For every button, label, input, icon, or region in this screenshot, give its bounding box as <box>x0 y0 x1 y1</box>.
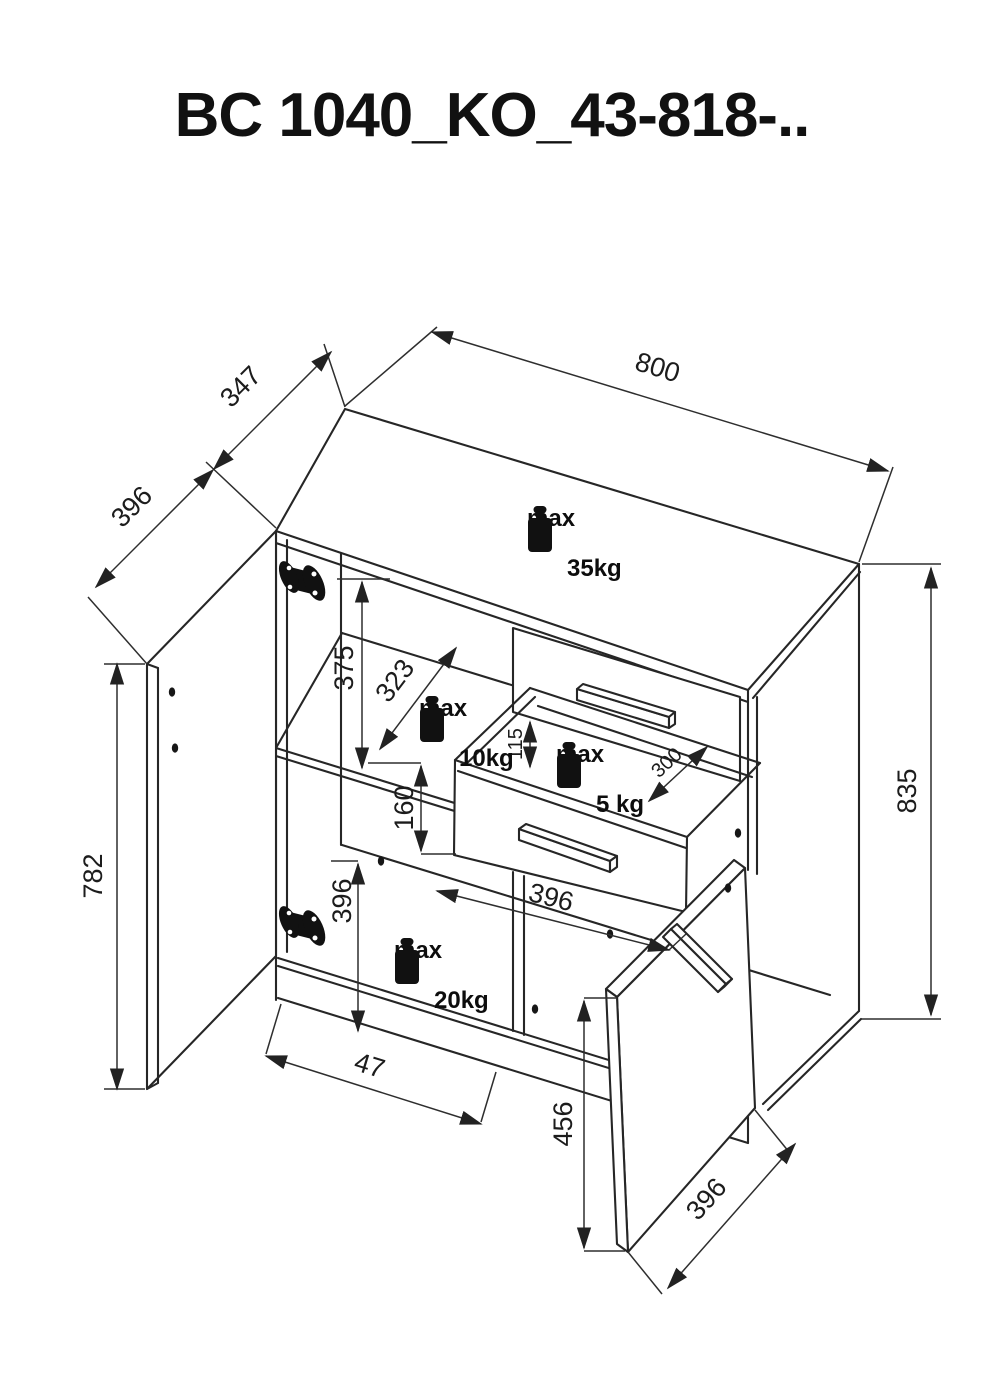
max-weight-bottom: max 20kg <box>394 938 489 1013</box>
dimension-782-left-door-height: 782 <box>78 664 145 1089</box>
right-door <box>606 860 755 1252</box>
svg-text:375: 375 <box>329 645 359 690</box>
weight-icon <box>419 696 445 742</box>
svg-text:800: 800 <box>632 346 684 388</box>
dimension-835-cabinet-height: 835 <box>861 564 941 1019</box>
svg-text:160: 160 <box>389 785 419 830</box>
svg-text:47: 47 <box>351 1047 389 1084</box>
hinge-top-icon <box>275 558 330 604</box>
svg-text:347: 347 <box>214 360 267 413</box>
max-value: 20kg <box>434 987 489 1014</box>
svg-text:396: 396 <box>327 878 357 923</box>
svg-text:835: 835 <box>892 768 922 813</box>
dimension-160-drawer-front: 160 <box>368 763 456 854</box>
technical-drawing-page: BC 1040_KO_43-818-.. <box>0 0 984 1391</box>
weight-icon <box>556 742 582 788</box>
svg-text:396: 396 <box>105 480 158 533</box>
dimension-396-lower-left-height: 396 <box>327 861 358 1031</box>
weight-icon <box>527 506 553 552</box>
weight-icon <box>394 938 420 984</box>
max-value: 35kg <box>567 555 622 582</box>
svg-text:323: 323 <box>369 654 420 708</box>
left-door <box>147 531 276 1089</box>
max-value: 5 kg <box>596 791 644 818</box>
max-weight-shelf: max 10kg <box>419 696 514 771</box>
max-value: 10kg <box>459 745 514 772</box>
max-weight-top: max 35kg <box>527 506 622 581</box>
center-divider <box>513 872 524 1035</box>
hinge-bottom-icon <box>275 903 330 949</box>
svg-text:782: 782 <box>78 853 108 898</box>
svg-text:456: 456 <box>548 1101 578 1146</box>
max-weight-drawer: max 5 kg <box>556 742 644 817</box>
